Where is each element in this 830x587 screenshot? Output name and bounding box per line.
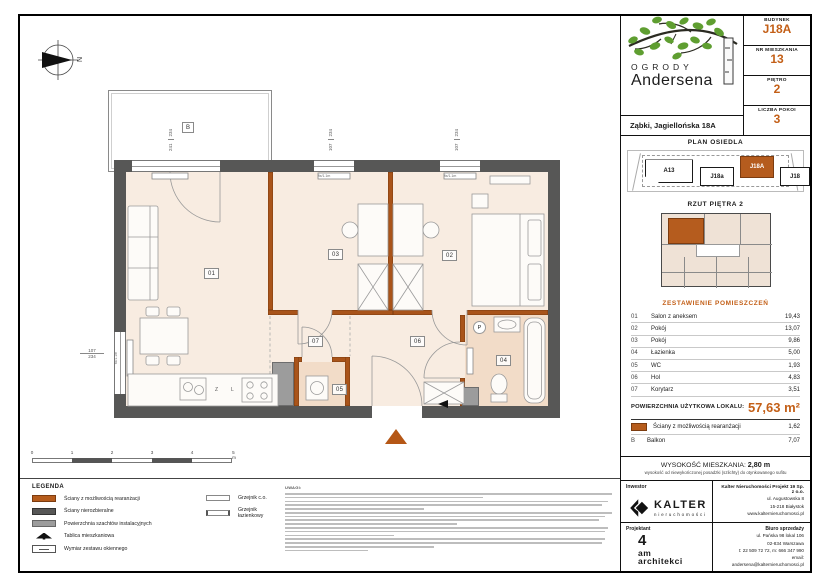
developer-logo-block: OGRODY Andersena Ząbki, Jagiellońska 18A [621, 16, 743, 135]
scale-bar: 0 1 2 3 4 5 m [32, 450, 232, 464]
window-dim: 107234 [323, 125, 339, 155]
company-website: www.kalternieruchomosci.pl [719, 510, 804, 517]
project-address: Ząbki, Jagiellońska 18A [621, 115, 743, 135]
orange-wall-swatch [631, 423, 647, 431]
title-block-column: OGRODY Andersena Ząbki, Jagiellońska 18A… [620, 16, 810, 571]
rooms-table-title: ZESTAWIENIE POMIESZCZEŃ [631, 300, 800, 307]
total-area-row: POWIERZCHNIA UŻYTKOWA LOKALU: 57,63 m² [631, 397, 800, 420]
kalter-logo-icon [628, 497, 650, 519]
sales-email: email: andersena@kalternieruchomosci.pl [719, 554, 804, 568]
towel-radiator-legend-icon [206, 510, 230, 516]
north-compass-icon [38, 40, 78, 80]
floor-thumb-section: RZUT PIĘTRA 2 [621, 197, 810, 296]
legend-title: LEGENDA [32, 484, 282, 490]
washer-spot-label: P [473, 321, 486, 334]
unit-info: BUDYNEK J18A NR MIESZKANIA 13 PIĘTRO 2 L… [743, 16, 810, 135]
company-address-cell: Kalter Nieruchomości Projekt 19 Sp. z o.… [713, 481, 810, 522]
window-dim: 107234 [449, 125, 465, 155]
street-line [632, 154, 641, 191]
window-fix-note: fix/1.1m [318, 174, 330, 178]
room-label-04: 04 [496, 355, 511, 366]
bottom-band: LEGENDA Ściany z możliwością rearanżacji… [20, 478, 620, 573]
tree-logo [621, 16, 743, 88]
room-label-05: 05 [332, 384, 347, 395]
site-plan-section: PLAN OSIEDLA A13 J18a J18A J18 [621, 136, 810, 197]
legend-orange-wall-swatch [32, 495, 56, 502]
building-j18a-active: J18A [740, 156, 774, 178]
window-fix-note: fix/1.1m [114, 352, 118, 364]
room-label-01: 01 [204, 268, 219, 279]
info-nr-mieszkania: NR MIESZKANIA 13 [744, 46, 810, 76]
radiator-legend-icon [206, 495, 230, 501]
table-row: 07Korytarz3,51 [631, 384, 800, 396]
legend: LEGENDA Ściany z możliwością rearanżacji… [32, 484, 282, 559]
header: OGRODY Andersena Ząbki, Jagiellońska 18A… [621, 16, 810, 136]
table-row: 06Hol4,83 [631, 372, 800, 384]
height-note: WYSOKOŚĆ MIESZKANIA: 2,80 m wysokość od … [621, 456, 810, 482]
height-value: 2,80 m [748, 460, 770, 469]
window-fix-note: fix/1.1m [444, 174, 456, 178]
legend-shaft-swatch [32, 520, 56, 527]
legend-dark-wall-swatch [32, 508, 56, 515]
room-label-02: 02 [442, 250, 457, 261]
sales-office-cell: Biuro sprzedaży ul. Pańska 98 lokal 106 … [713, 523, 810, 571]
balcony-area-row: B Balkon 7,07 [631, 435, 800, 447]
floor-plan: B [20, 16, 620, 478]
floor-thumb [661, 213, 771, 287]
rooms-table-section: ZESTAWIENIE POMIESZCZEŃ 01Salon z anekse… [621, 296, 810, 456]
table-row: 05WC1,93 [631, 359, 800, 371]
compass-n-label: N [77, 57, 84, 62]
tree-branch-icon [621, 16, 739, 86]
projektant-cell: Projektant 4 am architekci [621, 523, 713, 571]
entrance-arrow-icon [385, 429, 407, 444]
room-label-06: 06 [410, 336, 425, 347]
table-row: 01Salon z aneksem19,43 [631, 311, 800, 323]
info-liczba-pokoi: LICZBA POKOI 3 [744, 106, 810, 135]
info-pietro: PIĘTRO 2 [744, 76, 810, 106]
total-area-value: 57,63 m² [748, 400, 800, 415]
window-dim: 241234 [163, 125, 179, 155]
inwestor-cell: Inwestor KALTER nieruchomości [621, 481, 713, 522]
site-plan-map: A13 J18a J18A J18 [627, 150, 804, 192]
drawing-sheet: B [18, 14, 812, 573]
table-row: 03Pokój9,86 [631, 335, 800, 347]
notes-title: UWAGI: [285, 485, 615, 490]
walls-area-row: Ściany z możliwością rearanżacji 1,62 [631, 420, 800, 435]
sales-phone: t: 22 509 72 72, m: 666 347 990 [719, 547, 804, 554]
birch-trunk-icon [724, 38, 733, 84]
architect-logo: 4 am architekci [638, 534, 707, 564]
floor-thumb-title: RZUT PIĘTRA 2 [621, 201, 810, 208]
building-j18a-small: J18a [700, 167, 734, 186]
rooms-table: 01Salon z aneksem19,43 02Pokój13,07 03Po… [631, 311, 800, 396]
table-row: 02Pokój13,07 [631, 323, 800, 335]
window-dim-legend-icon [32, 545, 56, 553]
notes-block: UWAGI: [285, 485, 615, 554]
kalter-logo: KALTER nieruchomości [628, 497, 707, 519]
window-dim: 107234 [80, 348, 104, 360]
plan-graphics [20, 16, 620, 478]
thumb-active-unit [668, 218, 704, 244]
room-label-03: 03 [328, 249, 343, 260]
table-row: 04Łazienka5,00 [631, 347, 800, 359]
kitchen-sink-label: Z [215, 387, 218, 393]
site-plan-title: PLAN OSIEDLA [621, 139, 810, 146]
title-block-footer: Inwestor KALTER nieruchomości Kalter Nie [621, 481, 810, 571]
kitchen-fridge-label: L [231, 387, 234, 393]
room-label-07: 07 [308, 336, 323, 347]
info-budynek: BUDYNEK J18A [744, 16, 810, 46]
tablica-legend-icon [36, 533, 52, 540]
building-j18: J18 [780, 167, 810, 186]
